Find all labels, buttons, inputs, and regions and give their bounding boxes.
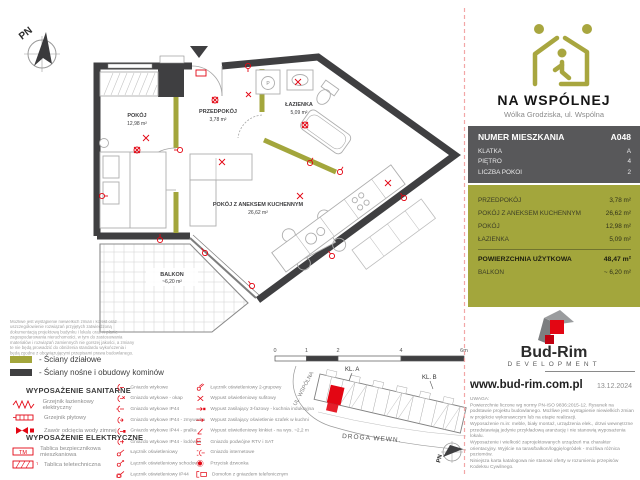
towel-radiator-icon [12,400,37,409]
doorbell-button-icon [196,460,206,467]
site-compass: PN [436,441,463,463]
fuse-board-icon: TM [12,447,34,456]
scale-tick-0: 0 [273,348,276,354]
compass-label: PN [17,25,35,42]
room-label-pokoj: POKÓJ [127,111,146,119]
table-row: KLATKAA [478,147,631,157]
scale-tick-2: 2 [336,348,339,354]
developer-subtitle: DEVELOPMENT [468,361,640,368]
ceiling-outlet-icon [196,395,206,402]
table-row: PRZEDPOKÓJ3,78 m² [478,194,631,207]
legend-partition-walls: - Ściany działowe [10,355,101,364]
legend-item: Gniazdo podwójne RTV i SAT [196,436,328,447]
partition-wall-label: - Ściany działowe [39,355,101,364]
estate-logo-icon [505,16,605,90]
legend-bearing-walls: - Ściany nośne i obudowy kominów [10,368,164,377]
legend-item: Wypust oświetleniowy kinkiet - na wys. ~… [196,426,328,437]
scale-tick-4: 4 [399,348,402,354]
north-arrow-icon [34,32,52,66]
apartment-area-table: PRZEDPOKÓJ3,78 m² POKÓJ Z ANEKSEM KUCHEN… [468,185,640,307]
light-switch-icon [116,449,126,456]
chimney-shaft [158,63,184,97]
cooker-feed-icon [196,406,206,413]
notes-block: UWAGA: Powierzchnie liczone wg normy PN-… [470,397,636,471]
site-compass-label: PN [436,454,444,464]
intercom-icon [196,471,207,478]
wall-sconce-outlet-icon [196,427,206,434]
road-label: DROGA WEWN. [342,433,402,444]
apartment-number-label: NUMER MIESZKANIA [478,132,564,142]
legend-item: Wypust zasilający 3-fazowy - kuchnia ind… [196,404,328,415]
legend-item: Przycisk dzwonka [196,458,328,469]
developer-logo-icon [530,310,580,344]
entrance-marker-icon [190,46,208,58]
socket-ip44-icon [116,406,126,413]
balcony-glass-wall [190,235,259,298]
room-area-przedpokoj: 3,78 m² [210,117,227,123]
date: 13.12.2024 [597,383,632,390]
room-area-balkon: ~6,20 m² [162,279,182,285]
legend-item: Gniazdo internetowe [196,447,328,458]
website-link[interactable]: www.bud-rim.com.pl [470,379,583,391]
socket-dishwasher-icon [116,416,126,423]
meter-box [160,56,184,63]
room-label-przedpokoj: PRZEDPOKÓJ [199,107,237,115]
legend-item: Wypust zasilający oświetlenie szafek w k… [196,415,328,426]
scale-tick-1: 1 [305,348,308,354]
legend-item: Domofon z gniazdem telefonicznym [196,469,328,480]
north-compass: PN [17,25,60,72]
socket-washer-icon [116,427,126,434]
website-row: www.bud-rim.com.pl 13.12.2024 [470,379,632,391]
cabinet-light-feed-icon [196,416,206,423]
apartment-number-value: A048 [611,132,631,142]
scale-bar: 0 1 2 4 6m [273,348,468,361]
svg-text:TM: TM [19,450,27,456]
building-outline [312,368,467,441]
svg-text:TT: TT [36,461,38,466]
legend-item: TT Tablica teletechniczna [12,458,124,471]
legend-item: Wypust oświetleniowy sufitowy [196,393,328,404]
bearing-wall-swatch [10,369,32,376]
socket-hood-icon [116,395,126,402]
table-row: POKÓJ Z ANEKSEM KUCHENNYM26,62 m² [478,207,631,220]
divider [545,371,635,372]
stairwell-b-label: KL. B [422,375,437,381]
legend-item: Grzejnik płytowy [12,411,120,424]
room-label-balkon: BALKON [160,272,184,278]
table-row: POKÓJ12,98 m² [478,220,631,233]
switch-ip44-icon [116,471,126,478]
developer-name: Bud-Rim [468,344,640,362]
partition-wall-swatch [10,356,32,363]
room-area-salon: 26,62 m² [248,210,268,216]
stair-switch-icon [116,460,126,467]
estate-location: Wólka Grodziska, ul. Wspólna [468,110,640,119]
switch-2group-icon [196,384,206,391]
room-area-pokoj: 12,98 m² [127,121,147,127]
table-row: LICZBA POKOI2 [478,168,631,178]
panel-radiator-icon [12,413,38,422]
table-row: ŁAZIENKA5,09 m² [478,233,631,246]
legend-item: Łącznik oświetleniowy 2-grupowy [196,382,328,393]
furniture [100,70,406,272]
catalog-sheet: PN BALKON ~6,20 m² [0,0,640,480]
divider [478,249,631,250]
room-area-lazienka: 5,09 m² [291,110,308,116]
apartment-header-table: NUMER MIESZKANIA A048 KLATKAA PIĘTRO4 LI… [468,126,640,183]
bedroom-window [108,64,152,68]
rtv-sat-socket-icon [196,438,206,445]
socket-icon [116,384,126,391]
estate-name: NA WSPÓLNEJ [468,92,640,108]
room-label-lazienka: ŁAZIENKA [285,102,313,108]
bearing-wall-label: - Ściany nośne i obudowy kominów [39,368,164,377]
stairwell-a-label: KL. A [345,367,359,373]
balcony-row: BALKON~ 6,20 m² [478,266,631,279]
legend-item: TM Tablica bezpiecznikowa mieszkaniowa [12,445,124,458]
room-label-salon: POKÓJ Z ANEKSEM KUCHENNYM [213,200,304,208]
teletech-board-icon: TT [12,460,38,469]
total-area-row: POWIERZCHNIA UŻYTKOWA48,47 m² [478,253,631,266]
plan-disclaimer: Możliwe jest wystąpienie niewielkich zmi… [10,320,137,357]
table-row: PIĘTRO4 [478,157,631,167]
legend-item: Grzejnik łazienkowy elektryczny [12,398,120,411]
balcony: BALKON ~6,20 m² [100,244,250,332]
internet-socket-icon [196,449,206,456]
socket-fridge-icon [116,438,126,445]
